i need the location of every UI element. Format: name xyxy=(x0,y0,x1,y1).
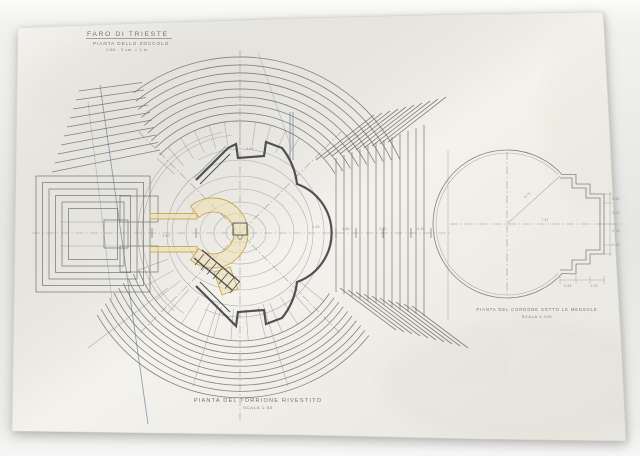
main-caption-title: PIANTA DEL TORRIONE RIVESTITO xyxy=(194,398,322,404)
paper-texture xyxy=(10,10,640,446)
detail-caption-scale: SCALA 1:100 xyxy=(522,315,553,319)
title-line3: 1:50 - 2 cm. = 1 m. xyxy=(106,48,149,52)
photographed-drawing-scene: 1.500.602.100.451.450.95 3.757.470.300.6… xyxy=(0,0,640,456)
svg-text:0.30: 0.30 xyxy=(612,243,619,247)
scene-svg: 1.500.602.100.451.450.95 3.757.470.300.6… xyxy=(0,0,640,456)
title-line2: PIANTA DELLO ZOCCOLO xyxy=(93,41,169,46)
detail-caption-title: PIANTA DEL CORDONE SOTTO LE MENSOLE xyxy=(476,307,597,312)
svg-text:2.10: 2.10 xyxy=(379,227,386,231)
svg-text:0.45: 0.45 xyxy=(417,227,424,231)
svg-text:0.95: 0.95 xyxy=(564,284,571,288)
svg-text:7.47: 7.47 xyxy=(541,218,548,222)
svg-text:0.30: 0.30 xyxy=(612,197,619,201)
title-line1: FARO DI TRIESTE xyxy=(87,31,169,38)
svg-text:0.95: 0.95 xyxy=(246,147,253,151)
svg-text:0.62: 0.62 xyxy=(612,211,619,215)
svg-text:1.05: 1.05 xyxy=(590,284,597,288)
svg-text:1.50: 1.50 xyxy=(162,234,169,238)
svg-text:0.60: 0.60 xyxy=(342,227,349,231)
main-caption-scale: SCALA 1:50 xyxy=(243,405,273,410)
svg-text:1.45: 1.45 xyxy=(312,225,319,229)
svg-text:0.74: 0.74 xyxy=(612,229,619,233)
